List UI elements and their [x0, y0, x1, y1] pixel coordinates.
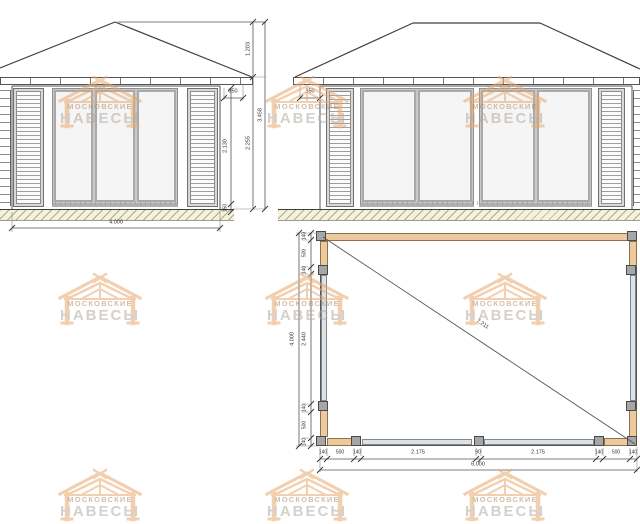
plan-outline — [320, 233, 637, 446]
watermark: МОСКОВСКИЕ НАВЕСЫ — [462, 468, 548, 524]
watermark-line1: МОСКОВСКИЕ — [57, 495, 143, 504]
plan-dim-bottom-0: 140 — [319, 451, 327, 456]
side-sliding-glass-doors-2 — [479, 88, 592, 207]
plan-dim-left-1: 500 — [303, 249, 308, 257]
plan-dim-left-2: 140 — [303, 266, 308, 274]
front-sliding-glass-doors — [52, 88, 178, 207]
plan-dim-bottom-4: 90 — [475, 451, 481, 456]
plan-dim-left-3: 2.440 — [302, 332, 308, 346]
plan-dim-left-4: 140 — [303, 404, 308, 412]
watermark-line2: НАВЕСЫ — [57, 307, 143, 324]
side-door-track-ticks — [362, 201, 590, 205]
plan-dim-bottom-7: 500 — [612, 451, 620, 456]
front-left-cut-strip — [0, 90, 11, 206]
watermark: МОСКОВСКИЕ НАВЕСЫ — [57, 468, 143, 524]
plan-bottom-post-center — [474, 436, 484, 446]
side-roof-lines — [295, 23, 640, 77]
front-left-louver-panel — [13, 88, 44, 207]
drawing-sheet: { "watermark": { "line1": "МОСКОВСКИЕ", … — [0, 0, 640, 480]
door-panel — [362, 90, 416, 202]
plan-right-post-upper — [626, 265, 636, 275]
plan-dim-bottom-3: 2.175 — [411, 450, 425, 456]
plan-left-glazing — [321, 275, 327, 401]
plan-left-post-lower — [318, 401, 328, 411]
door-panel — [95, 90, 134, 202]
door-panel — [537, 90, 591, 202]
side-eave-overhang-dim: 350 — [305, 89, 314, 95]
plan-corner-post-br — [627, 436, 637, 446]
side-fascia-board — [293, 77, 640, 85]
watermark: МОСКОВСКИЕ НАВЕСЫ — [57, 272, 143, 328]
watermark: МОСКОВСКИЕ НАВЕСЫ — [264, 468, 350, 524]
front-wall-height-dim: 2.255 — [246, 136, 252, 150]
louver-slats — [16, 91, 41, 204]
plan-dim-bottom-8: 140 — [629, 451, 637, 456]
door-panel — [137, 90, 176, 202]
side-sliding-glass-doors-1 — [360, 88, 474, 207]
plan-bottom-louver-left — [327, 438, 353, 446]
front-base-height-dim: 150 — [224, 204, 229, 212]
plan-bottom-post-right — [594, 436, 604, 446]
front-right-louver-panel — [187, 88, 218, 207]
side-left-louver-panel — [326, 88, 354, 207]
louver-slats — [601, 91, 622, 204]
plan-dim-bottom-1: 500 — [336, 451, 344, 456]
door-panel — [54, 90, 93, 202]
plan-right-post-lower — [626, 401, 636, 411]
plan-dim-left-5: 500 — [303, 421, 308, 429]
watermark-truss-icon — [462, 468, 548, 524]
plan-right-louver-bottom — [629, 410, 637, 437]
plan-top-beam — [320, 233, 637, 241]
side-right-louver-panel — [598, 88, 625, 207]
plan-left-total-dim: 4.000 — [290, 332, 296, 346]
watermark-truss-icon — [57, 468, 143, 524]
plan-corner-post-tl — [316, 231, 326, 241]
plan-left-post-upper — [318, 265, 328, 275]
front-eave-overhang-dim: 350 — [228, 89, 237, 95]
plan-dim-bottom-2: 140 — [353, 451, 361, 456]
front-roof-height-dim: 1.203 — [246, 42, 252, 56]
plan-dim-left-6: 140 — [303, 438, 308, 446]
front-fascia-board — [0, 77, 253, 85]
front-door-height-dim: 2.130 — [223, 139, 229, 153]
plan-corner-post-tr — [627, 231, 637, 241]
plan-bottom-post-left — [351, 436, 361, 446]
louver-slats — [329, 91, 351, 204]
louver-slats — [190, 91, 215, 204]
watermark-truss-icon — [264, 468, 350, 524]
plan-dim-bottom-6: 140 — [595, 451, 603, 456]
door-panel — [481, 90, 535, 202]
watermark-line2: НАВЕСЫ — [462, 503, 548, 520]
plan-left-louver-bottom — [320, 410, 328, 437]
plan-right-louver-top — [629, 241, 637, 266]
watermark-line2: НАВЕСЫ — [264, 503, 350, 520]
front-roof-lines — [0, 22, 252, 77]
front-width-dim: 4.000 — [109, 220, 123, 226]
door-panel — [418, 90, 472, 202]
plan-dim-left-0: 140 — [303, 232, 308, 240]
plan-bottom-glazing-2 — [484, 439, 594, 445]
plan-left-louver-top — [320, 241, 328, 266]
watermark-line1: МОСКОВСКИЕ — [264, 495, 350, 504]
plan-right-glazing — [630, 275, 636, 401]
side-right-cut-strip — [633, 90, 640, 206]
watermark-line2: НАВЕСЫ — [57, 503, 143, 520]
front-door-track-ticks — [55, 201, 177, 205]
watermark-line1: МОСКОВСКИЕ — [462, 495, 548, 504]
watermark-line1: МОСКОВСКИЕ — [57, 299, 143, 308]
plan-dim-bottom-5: 2.175 — [531, 450, 545, 456]
plan-bottom-glazing-1 — [362, 439, 472, 445]
plan-corner-post-bl — [316, 436, 326, 446]
watermark-truss-icon — [57, 272, 143, 328]
side-ground-base — [278, 209, 640, 221]
plan-bottom-total-dim: 6.000 — [471, 462, 485, 468]
front-total-height-dim: 3.458 — [258, 108, 264, 122]
